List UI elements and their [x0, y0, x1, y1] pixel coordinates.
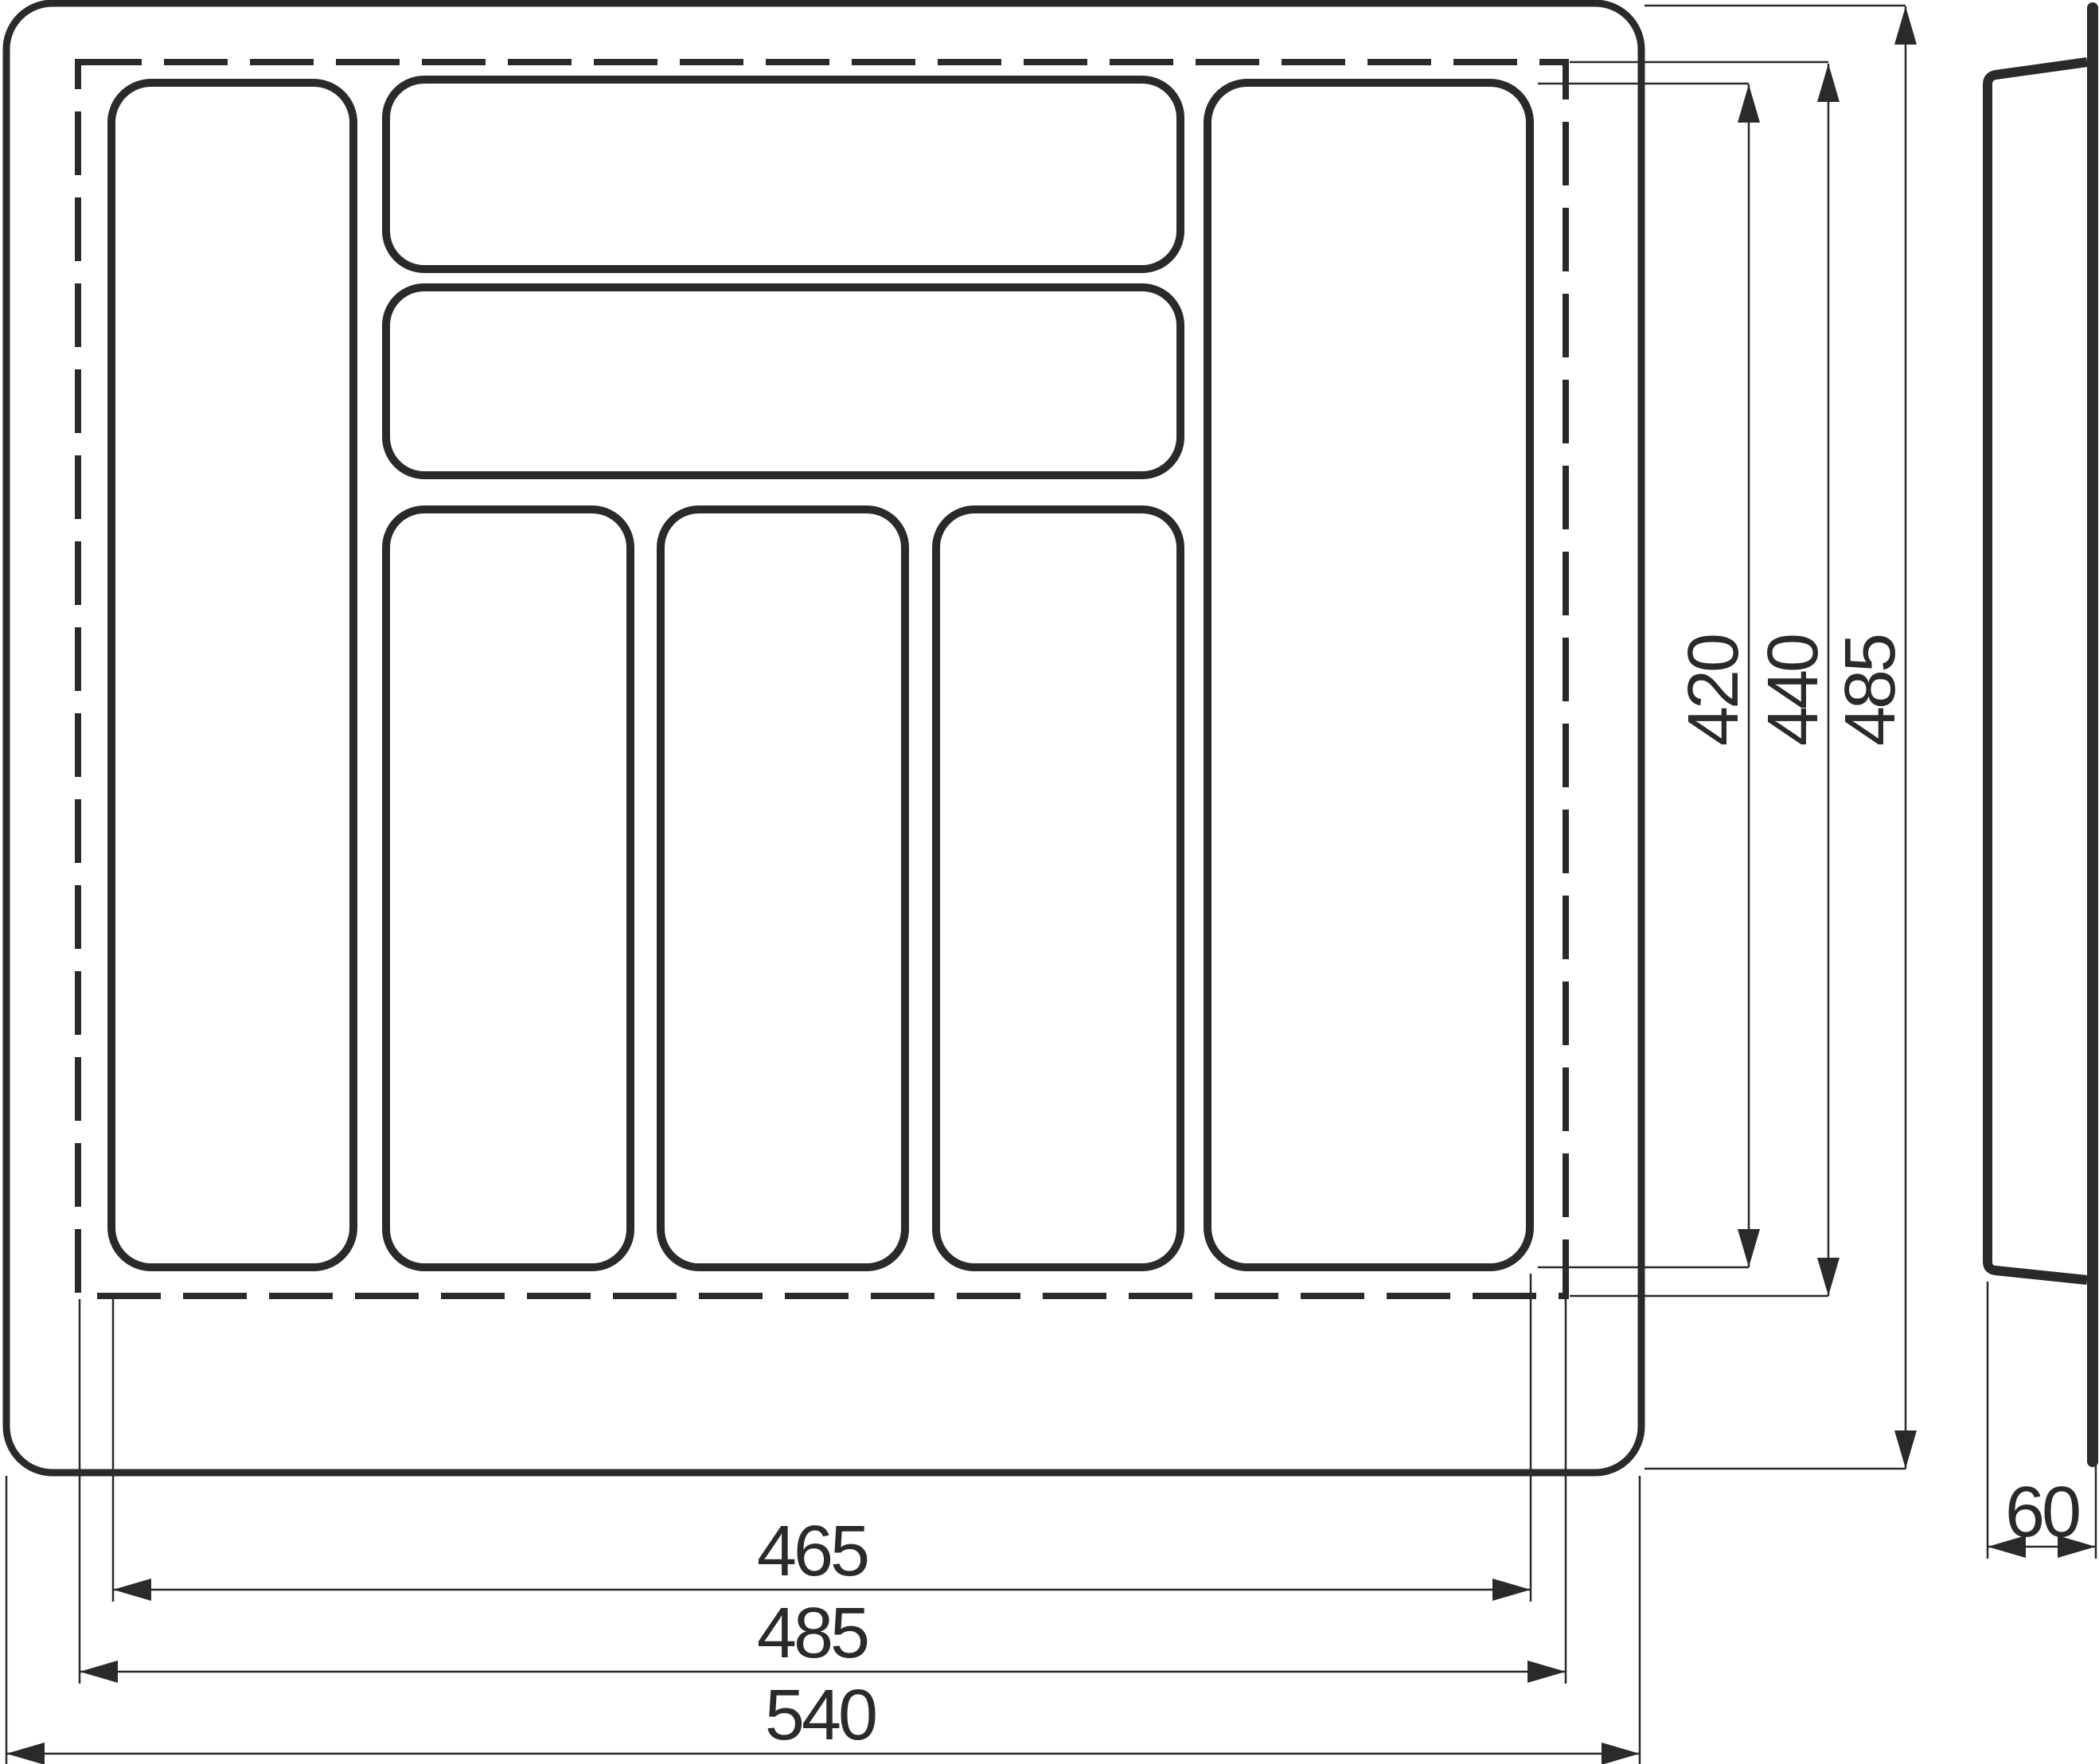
dim-label-trim-height: 440 — [1754, 635, 1833, 746]
dim-label-trim-width: 485 — [757, 1594, 868, 1673]
compartment-left-column — [111, 83, 353, 1267]
compartment-top-wide — [386, 80, 1180, 269]
compartment-second-wide — [386, 287, 1180, 475]
compartment-middle-3 — [936, 509, 1180, 1267]
dim-label-inner-height: 420 — [1674, 635, 1754, 746]
arrow-outer-width-left — [6, 1743, 45, 1764]
dim-label-inner-width: 465 — [757, 1512, 868, 1591]
arrow-inner-width-right — [1492, 1579, 1531, 1601]
technical-drawing-canvas: 420 440 485 465 485 — [0, 0, 2099, 1764]
dim-label-outer-width: 540 — [765, 1676, 876, 1755]
drawing-svg: 420 440 485 465 485 — [0, 0, 2099, 1764]
side-profile-outline — [1988, 62, 2087, 1280]
arrow-inner-width-left — [113, 1579, 151, 1601]
arrow-outer-height-top — [1894, 6, 1917, 45]
arrow-trim-width-left — [80, 1661, 118, 1683]
dim-label-outer-height: 485 — [1831, 635, 1910, 746]
arrow-outer-height-bottom — [1894, 1430, 1917, 1469]
compartment-middle-1 — [386, 509, 630, 1267]
horizontal-dimensions: 465 485 540 — [6, 1274, 1640, 1764]
arrow-trim-height-bottom — [1817, 1258, 1840, 1296]
side-view — [1988, 8, 2093, 1462]
compartment-middle-2 — [661, 509, 905, 1267]
compartment-right-column — [1208, 83, 1530, 1267]
dim-label-thickness: 60 — [2005, 1473, 2079, 1552]
vertical-dimensions: 420 440 485 — [1538, 6, 1917, 1469]
trim-cut-line-dashed — [78, 62, 1566, 1296]
arrow-outer-width-right — [1602, 1743, 1640, 1764]
arrow-inner-height-bottom — [1738, 1229, 1760, 1267]
arrow-inner-height-top — [1738, 84, 1760, 123]
tray-outer-outline — [6, 3, 1641, 1473]
arrow-trim-height-top — [1817, 64, 1840, 102]
arrow-trim-width-right — [1527, 1661, 1566, 1683]
plan-view — [6, 3, 1641, 1473]
side-view-dimension: 60 — [1988, 1282, 2096, 1559]
